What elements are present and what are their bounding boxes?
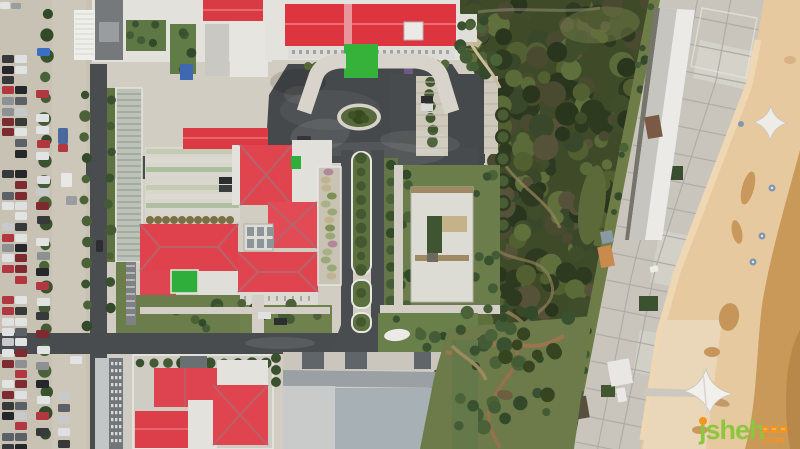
svg-text:.com: .com — [761, 435, 784, 446]
svg-text:jsheh: jsheh — [698, 415, 765, 445]
